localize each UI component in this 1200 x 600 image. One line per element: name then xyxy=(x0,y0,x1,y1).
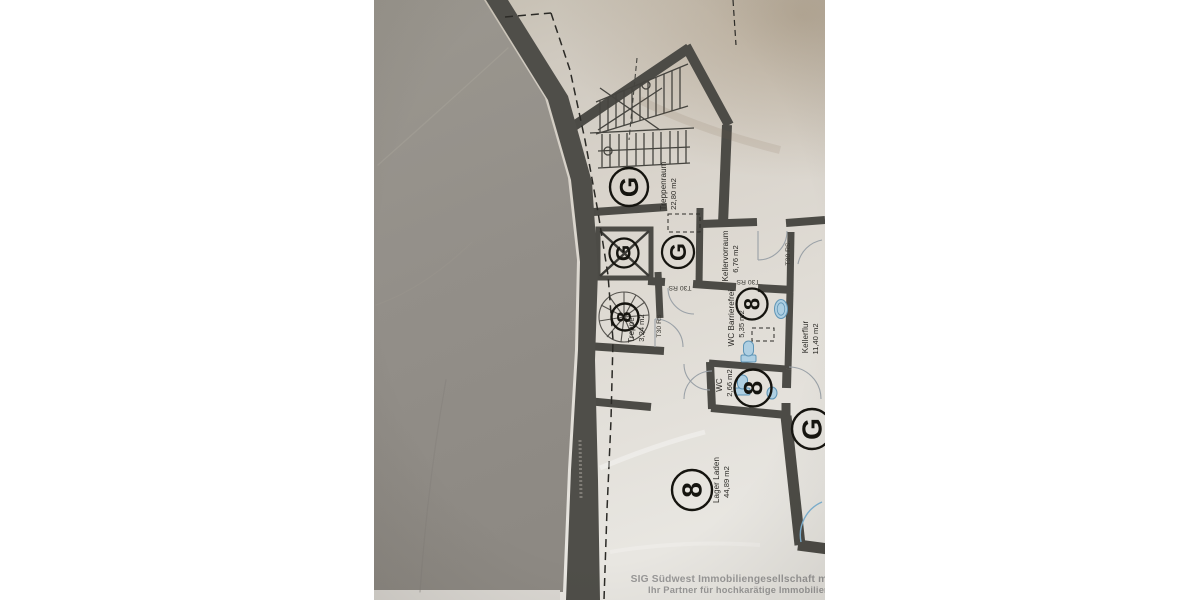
photo-canvas: G G G 8 8 8 8 xyxy=(0,0,1200,600)
floorplan-photo: G G G 8 8 8 8 xyxy=(374,0,841,600)
screenshot: G G G 8 8 8 8 xyxy=(0,0,1200,600)
photo-vignette xyxy=(374,0,825,600)
